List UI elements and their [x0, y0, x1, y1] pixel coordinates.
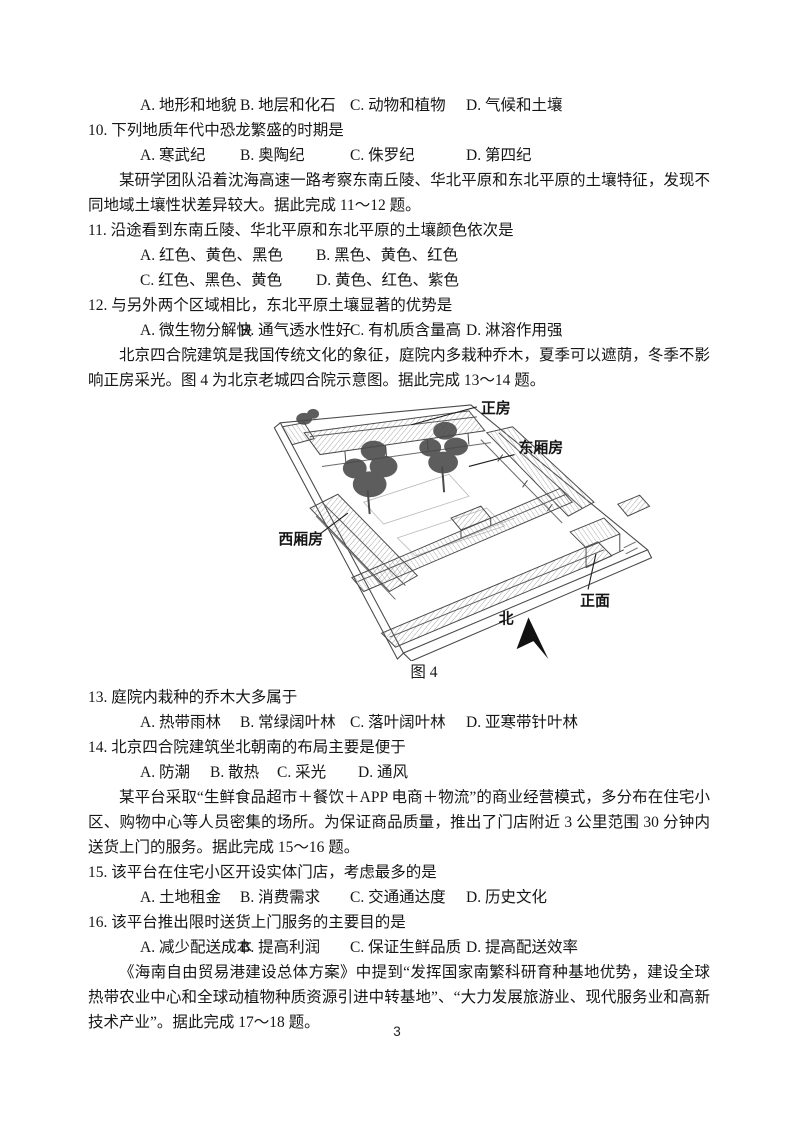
options-row-q14: A. 防潮B. 散热C. 采光D. 通风: [88, 760, 710, 785]
option-d: D. 气候和土壤: [466, 93, 562, 118]
option-b: B. 消费需求: [240, 885, 350, 910]
stimulus-soil-survey: 某研学团队沿着沈海高速一路考察东南丘陵、华北平原和东北平原的土壤特征，发现不同地…: [88, 168, 710, 218]
question-14: 14. 北京四合院建筑坐北朝南的布局主要是便于: [88, 735, 710, 760]
option-d: D. 历史文化: [466, 885, 547, 910]
option-b: B. 通气透水性好: [240, 318, 350, 343]
option-d: D. 亚寒带针叶林: [466, 710, 578, 735]
option-c: C. 动物和植物: [350, 93, 466, 118]
option-a: A. 微生物分解快: [140, 318, 240, 343]
question-13: 13. 庭院内栽种的乔木大多属于: [88, 685, 710, 710]
option-d: D. 黄色、红色、紫色: [316, 268, 459, 293]
question-12: 12. 与另外两个区域相比，东北平原土壤显著的优势是: [88, 293, 710, 318]
options-row-q12: A. 微生物分解快B. 通气透水性好C. 有机质含量高D. 淋溶作用强: [88, 318, 710, 343]
north-label: 北: [499, 610, 514, 627]
figure-4: 正房 东厢房 西厢房 正面 北 图 4: [253, 393, 665, 685]
option-d: D. 淋溶作用强: [466, 318, 562, 343]
option-c: C. 落叶阔叶林: [350, 710, 466, 735]
option-a: A. 土地租金: [140, 885, 240, 910]
stimulus-siheyuan: 北京四合院建筑是我国传统文化的象征，庭院内多栽种乔木，夏季可以遮荫，冬季不影响正…: [88, 343, 710, 393]
question-16: 16. 该平台推出限时送货上门服务的主要目的是: [88, 910, 710, 935]
options-row-q11-ab: A. 红色、黄色、黑色B. 黑色、黄色、红色: [88, 243, 710, 268]
option-a: A. 防潮: [140, 760, 210, 785]
option-a: A. 红色、黄色、黑色: [140, 243, 316, 268]
option-c: C. 采光: [277, 760, 358, 785]
stimulus-fresh-food-platform: 某平台采取“生鲜食品超市＋餐饮＋APP 电商＋物流”的商业经营模式，多分布在住宅…: [88, 785, 710, 860]
question-11: 11. 沿途看到东南丘陵、华北平原和东北平原的土壤颜色依次是: [88, 218, 710, 243]
question-10: 10. 下列地质年代中恐龙繁盛的时期是: [88, 118, 710, 143]
option-c: C. 侏罗纪: [350, 143, 466, 168]
option-c: C. 有机质含量高: [350, 318, 466, 343]
label-west-wing: 西厢房: [278, 530, 323, 548]
option-b: B. 散热: [210, 760, 277, 785]
option-c: C. 保证生鲜品质: [350, 935, 466, 960]
options-row-q11-cd: C. 红色、黑色、黄色D. 黄色、红色、紫色: [88, 268, 710, 293]
option-b: B. 黑色、黄色、红色: [316, 243, 458, 268]
option-d: D. 第四纪: [466, 143, 531, 168]
label-main-house: 正房: [481, 399, 511, 417]
option-a: A. 热带雨林: [140, 710, 240, 735]
option-b: B. 奥陶纪: [240, 143, 350, 168]
north-arrow-icon: [517, 617, 549, 659]
option-a: A. 地形和地貌: [140, 93, 240, 118]
option-d: D. 通风: [358, 760, 408, 785]
label-east-wing: 东厢房: [519, 439, 564, 457]
page-number: 3: [0, 1024, 794, 1039]
options-row-q13: A. 热带雨林B. 常绿阔叶林C. 落叶阔叶林D. 亚寒带针叶林: [88, 710, 710, 735]
option-a: A. 减少配送成本: [140, 935, 240, 960]
page-content: A. 地形和地貌B. 地层和化石C. 动物和植物D. 气候和土壤 10. 下列地…: [0, 0, 794, 1035]
siheyuan-illustration: 正房 东厢房 西厢房 正面 北: [253, 393, 663, 661]
options-row-q9: A. 地形和地貌B. 地层和化石C. 动物和植物D. 气候和土壤: [88, 93, 710, 118]
option-b: B. 提高利润: [240, 935, 350, 960]
figure-caption: 图 4: [253, 661, 595, 685]
option-c: C. 交通通达度: [350, 885, 466, 910]
option-c: C. 红色、黑色、黄色: [140, 268, 316, 293]
options-row-q10: A. 寒武纪B. 奥陶纪C. 侏罗纪D. 第四纪: [88, 143, 710, 168]
option-a: A. 寒武纪: [140, 143, 240, 168]
option-b: B. 常绿阔叶林: [240, 710, 350, 735]
question-15: 15. 该平台在住宅小区开设实体门店，考虑最多的是: [88, 860, 710, 885]
options-row-q15: A. 土地租金B. 消费需求C. 交通通达度D. 历史文化: [88, 885, 710, 910]
exam-page: A. 地形和地貌B. 地层和化石C. 动物和植物D. 气候和土壤 10. 下列地…: [0, 0, 794, 1122]
options-row-q16: A. 减少配送成本B. 提高利润C. 保证生鲜品质D. 提高配送效率: [88, 935, 710, 960]
option-b: B. 地层和化石: [240, 93, 350, 118]
option-d: D. 提高配送效率: [466, 935, 578, 960]
label-front-facade: 正面: [580, 592, 610, 609]
